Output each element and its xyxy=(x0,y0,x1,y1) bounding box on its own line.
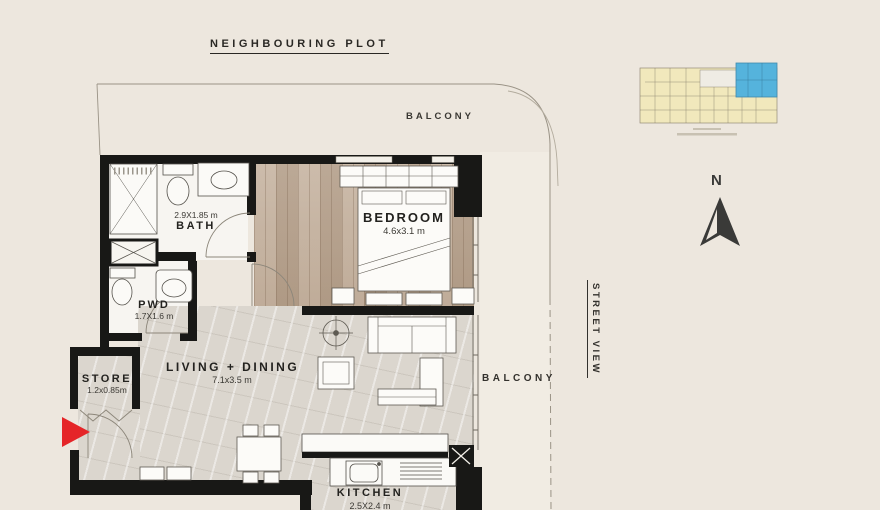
store-room-label: STORE 1.2x0.85m xyxy=(78,373,136,395)
key-plan-caption-line xyxy=(693,128,721,130)
kitchen-fixtures xyxy=(302,434,456,486)
living-dining-dimensions: 7.1x3.5 m xyxy=(166,375,298,385)
store-name: STORE xyxy=(78,373,136,385)
neighbouring-plot-label: NEIGHBOURING PLOT xyxy=(210,38,389,54)
top-balcony-label: BALCONY xyxy=(406,111,474,122)
pwd-name: PWD xyxy=(126,299,182,311)
plan-linework xyxy=(0,0,880,510)
street-view-label: STREET VIEW xyxy=(587,280,601,378)
kitchen-name: KITCHEN xyxy=(328,487,412,499)
key-plan xyxy=(640,63,777,136)
north-arrow-icon xyxy=(700,197,740,246)
kitchen-dimensions: 2.5X2.4 m xyxy=(328,501,412,510)
entrance-arrow xyxy=(62,417,90,447)
key-plan-caption-line xyxy=(677,133,737,136)
bedroom-name: BEDROOM xyxy=(354,210,454,225)
pwd-room-label: PWD 1.7X1.6 m xyxy=(126,299,182,321)
column xyxy=(449,445,474,467)
bath-room-label: 2.9X1.85 m BATH xyxy=(166,210,226,232)
store-dimensions: 1.2x0.85m xyxy=(78,385,136,395)
floor-plan-page: NEIGHBOURING PLOT BALCONY 2.9X1.85 m BAT… xyxy=(0,0,880,510)
bedroom-room-label: BEDROOM 4.6x3.1 m xyxy=(354,210,454,237)
bath-dimensions: 2.9X1.85 m xyxy=(166,210,226,220)
north-label: N xyxy=(711,172,722,189)
living-dining-name: LIVING + DINING xyxy=(166,360,298,374)
pwd-dimensions: 1.7X1.6 m xyxy=(126,311,182,321)
living-dining-room-label: LIVING + DINING 7.1x3.5 m xyxy=(166,360,298,385)
side-balcony-label: BALCONY xyxy=(482,373,556,384)
window-glass-lines xyxy=(473,217,478,450)
bath-name: BATH xyxy=(166,220,226,232)
bedroom-dimensions: 4.6x3.1 m xyxy=(354,226,454,237)
kitchen-room-label: KITCHEN 2.5X2.4 m xyxy=(328,487,412,510)
